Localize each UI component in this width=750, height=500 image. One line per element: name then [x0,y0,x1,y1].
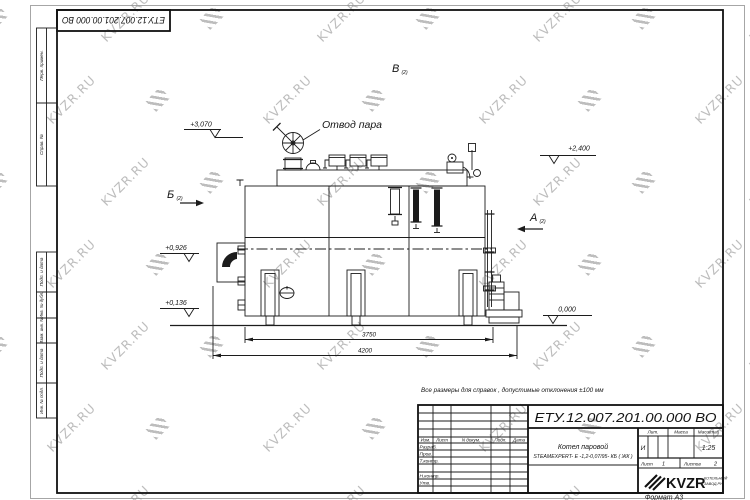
support-leg [459,270,477,325]
nozzle-stub [238,300,245,310]
col-list: Лист [435,438,448,443]
margin-box-podp-data-2: Подп. и дата [37,343,58,383]
safety-valve [323,155,345,170]
col-podp: Подп. [494,438,506,443]
signature-table: Изм. Лист N докум. Подп. Дата Разраб. Пр… [418,405,528,493]
nozzle-stub [238,277,245,285]
svg-text:Б: Б [167,189,174,201]
col-izm: Изм. [421,438,431,443]
kvzr-logo-mark [645,475,665,490]
dim-text: 4200 [358,348,373,355]
vent-stub [237,180,244,186]
svg-text:0,000: 0,000 [558,307,576,314]
margin-stamp-boxes: Перв. примен. Справ. № Подп. и дата Инв.… [37,28,58,418]
company-subtitle-1: КОТЕЛЬНЫЙ [704,477,728,481]
row-razrab: Разраб. [420,445,437,451]
product-name-line1: Котел паровой [558,443,608,451]
title-doc-number: ЕТУ.12.007.201.00.000 ВО [535,410,717,425]
margin-box-inv-podl: Инв. № подл. [37,383,58,418]
margin-box-perv-primen: Перв. примен. [37,28,58,103]
sheet-value: 1 [662,462,665,468]
col-data: Дата [512,438,526,443]
product-name-cell: Котел паровой STEAMEXPERT- Е -1,2-0,07/9… [528,443,638,465]
view-label-a: А (2) [517,212,546,232]
format-label: Формат А3 [645,495,683,500]
sheets-value: 2 [713,462,717,468]
view-label-v: В (2) [392,63,408,76]
margin-box-vzam-inv: Взам. инв. № [37,317,58,344]
margin-box-sprav-no: Справ. № [37,103,58,186]
svg-text:+0,136: +0,136 [165,300,187,307]
steam-drum [277,170,467,186]
sheets-label: Листов [683,462,701,467]
row-prov: Пров. [420,452,433,458]
level-gauge-column [411,188,422,229]
support-legs [261,270,477,325]
svg-text:+2,400: +2,400 [568,146,590,153]
level-gauges [388,188,443,233]
manhole [280,286,294,299]
nozzle-stub [238,246,245,254]
svg-text:(2): (2) [177,196,183,202]
svg-text:+0,926: +0,926 [165,245,187,252]
lit-massa-masshtab: Лит. Масса Масштаб И 1:25 [638,428,723,458]
margin-box-inv-dubl: Инв. № дубл. [37,292,58,318]
scale-value: 1:25 [702,445,716,452]
feed-fittings [447,144,481,180]
level-gauge-column [432,188,443,233]
steam-outlet-callout: Отвод пара [303,119,382,140]
sheet-count-row: Лист 1 Листов 2 [638,458,723,468]
left-wall-nozzles [237,180,246,310]
lit-header: Лит. [647,430,659,435]
elevation-mark: +2,400 [540,146,596,164]
view-labels: Б (2) В (2) А (2) [167,63,546,232]
margin-label: Справ. № [39,134,44,155]
gost-drawing-canvas: ЕТУ.12.007.201.00.000 ВО Перв. примен. С… [0,0,750,500]
row-utv: Утв. [420,481,431,487]
doc-number-flipped-box: ЕТУ.12.007.201.00.000 ВО [57,10,170,31]
safety-valves [323,155,387,170]
margin-label: Инв. № подл. [39,387,44,414]
pump-motor [504,292,519,310]
view-label-b: Б (2) [167,189,204,206]
svg-text:(2): (2) [402,70,408,76]
callout-leader-line [303,130,320,141]
product-name-line2: STEAMEXPERT- Е -1,2-0,07/95- КБ ( ЖК ) [533,454,633,460]
elevation-mark: +0,136 [160,300,199,317]
safety-valve [344,155,366,170]
title-block: Изм. Лист N докум. Подп. Дата Разраб. Пр… [418,405,728,493]
dim-text: 3750 [362,332,377,339]
boiler-side-view: Отвод пара [160,63,596,359]
tolerance-note: Все размеры для справок , допустимые отк… [421,386,604,394]
col-ndokum: N докум. [462,438,481,443]
massa-header: Масса [674,430,688,435]
view-arrow-left [517,226,525,232]
level-gauge-glass [388,188,402,226]
row-tkontr: Т.контр. [420,459,439,465]
margin-label: Подп. и дата [39,348,44,377]
steam-valve [273,123,304,170]
margin-label: Подп. и дата [39,257,44,286]
company-subtitle-2: ЗАВОД.РУ [704,482,723,486]
doc-number-flipped-text: ЕТУ.12.007.201.00.000 ВО [62,15,165,25]
dimension-3750: 3750 [245,327,493,343]
drum-dome [306,161,320,171]
masshtab-header: Масштаб [698,430,720,435]
elevation-mark: +0,926 [160,245,199,262]
safety-valve [365,155,387,170]
margin-label: Взам. инв. № [39,317,44,344]
support-leg [347,270,365,325]
company-name: KVZR [666,476,706,492]
margin-label: Перв. примен. [39,50,44,81]
company-logo: KVZR КОТЕЛЬНЫЙ ЗАВОД.РУ [645,475,728,492]
row-nkontr: Н.контр. [420,474,440,480]
svg-text:В: В [392,63,399,75]
steam-outlet-label: Отвод пара [322,119,382,131]
view-arrow-right [196,200,204,206]
elevation-mark: 0,000 [543,307,592,324]
elevation-mark: +3,070 [184,122,243,138]
drawing-sheet: KVZR.RUKVZR.RUKVZR.RUKVZR.RUKVZR.RUKVZR.… [0,0,750,500]
sheet-label: Лист [640,462,653,467]
margin-box-podp-data-1: Подп. и дата [37,252,58,292]
burner-scroll [222,252,237,267]
lit-value: И [641,445,646,452]
support-leg [261,270,279,325]
svg-text:(2): (2) [540,219,546,225]
svg-text:А: А [529,212,537,224]
margin-label: Инв. № дубл. [39,292,44,318]
svg-text:+3,070: +3,070 [190,122,212,129]
